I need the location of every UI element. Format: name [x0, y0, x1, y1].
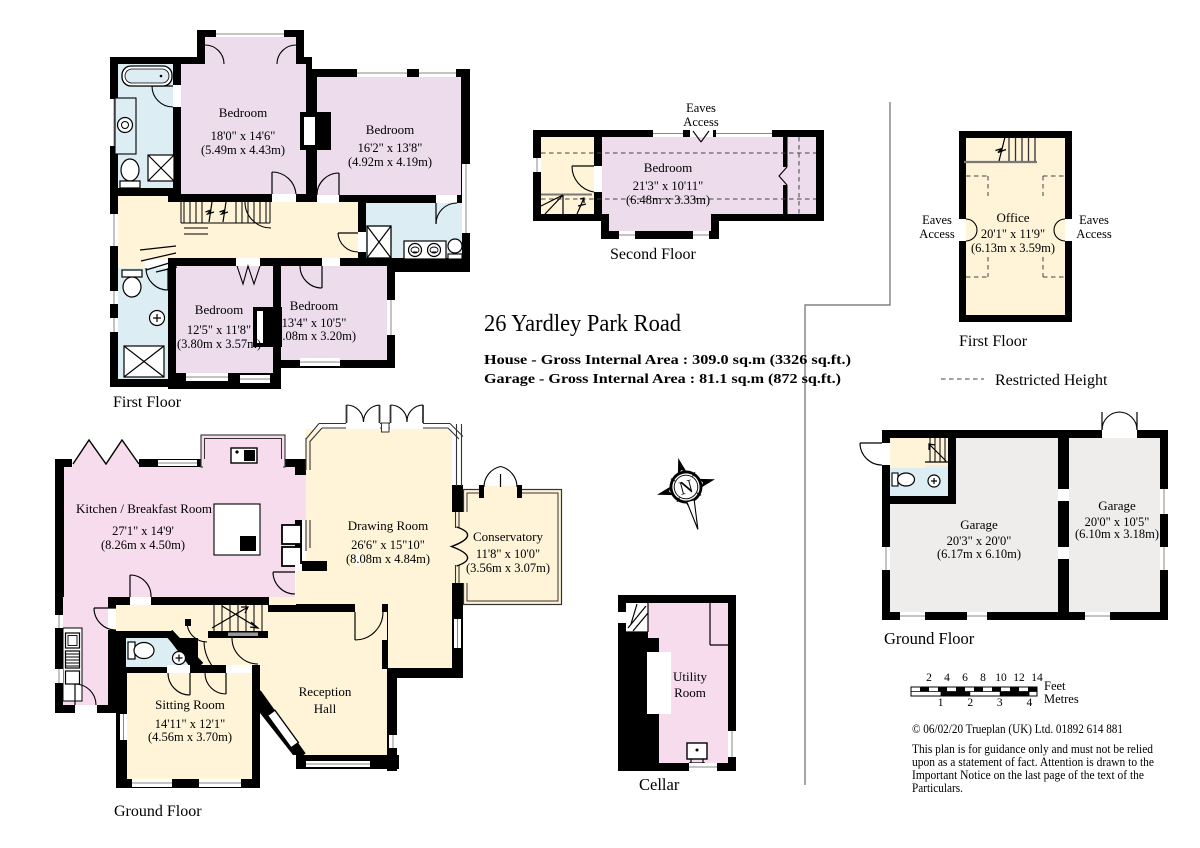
svg-text:Access: Access	[919, 227, 955, 241]
svg-text:14: 14	[1031, 672, 1043, 684]
svg-text:Eaves: Eaves	[922, 213, 952, 227]
svg-text:First Floor: First Floor	[113, 394, 182, 411]
svg-text:(5.49m x 4.43m): (5.49m x 4.43m)	[201, 143, 285, 157]
svg-text:2: 2	[926, 672, 932, 684]
svg-text:Bedroom: Bedroom	[290, 298, 338, 313]
svg-text:12: 12	[1013, 672, 1025, 684]
svg-text:(8.26m x 4.50m): (8.26m x 4.50m)	[101, 538, 185, 552]
svg-text:Conservatory: Conservatory	[473, 529, 544, 544]
svg-text:21'3" x 10'11": 21'3" x 10'11"	[633, 179, 704, 193]
svg-text:Cellar: Cellar	[639, 775, 680, 794]
svg-text:26'6" x 15"10": 26'6" x 15"10"	[351, 538, 425, 552]
svg-text:Hall: Hall	[314, 701, 337, 716]
svg-text:Utility: Utility	[673, 669, 707, 684]
svg-text:Bedroom: Bedroom	[195, 302, 243, 317]
svg-text:Restricted Height: Restricted Height	[995, 372, 1108, 389]
svg-text:House - Gross Internal Area :: House - Gross Internal Area : 309.0 sq.m…	[484, 353, 851, 368]
svg-text:13'4" x 10'5": 13'4" x 10'5"	[282, 316, 347, 330]
svg-text:18'0" x 14'6": 18'0" x 14'6"	[211, 129, 276, 143]
svg-text:20'3" x 20'0": 20'3" x 20'0"	[947, 534, 1012, 548]
svg-text:Particulars.: Particulars.	[912, 780, 963, 795]
svg-text:(6.48m x 3.33m): (6.48m x 3.33m)	[626, 193, 710, 207]
svg-text:10: 10	[995, 672, 1007, 684]
svg-text:(4.08m x 3.20m): (4.08m x 3.20m)	[272, 329, 356, 343]
svg-text:Garage - Gross Internal Area: Garage - Gross Internal Area : 81.1 sq.m…	[484, 372, 841, 387]
svg-text:(8.08m x 4.84m): (8.08m x 4.84m)	[346, 552, 430, 566]
svg-text:27'1" x 14'9': 27'1" x 14'9'	[112, 524, 174, 538]
svg-text:Eaves: Eaves	[686, 101, 716, 115]
svg-text:1: 1	[938, 697, 944, 709]
svg-text:First Floor: First Floor	[959, 333, 1028, 350]
svg-text:16'2" x 13'8": 16'2" x 13'8"	[358, 141, 423, 155]
svg-text:Ground Floor: Ground Floor	[114, 803, 202, 820]
svg-text:14'11" x 12'1": 14'11" x 12'1"	[155, 717, 226, 731]
svg-text:Eaves: Eaves	[1079, 213, 1109, 227]
svg-text:26 Yardley Park Road: 26 Yardley Park Road	[484, 310, 681, 337]
svg-text:Kitchen / Breakfast Room: Kitchen / Breakfast Room	[76, 501, 212, 516]
svg-text:4: 4	[1027, 697, 1033, 709]
svg-text:4: 4	[944, 672, 950, 684]
svg-text:(4.92m x 4.19m): (4.92m x 4.19m)	[348, 155, 432, 169]
svg-text:(3.80m x 3.57m): (3.80m x 3.57m)	[177, 337, 261, 351]
svg-text:3: 3	[997, 697, 1003, 709]
svg-text:2: 2	[967, 697, 973, 709]
svg-text:6: 6	[962, 672, 968, 684]
svg-text:(4.56m x 3.70m): (4.56m x 3.70m)	[148, 730, 232, 744]
svg-text:Ground Floor: Ground Floor	[884, 629, 975, 648]
svg-text:Office: Office	[997, 210, 1030, 225]
svg-text:Bedroom: Bedroom	[644, 160, 692, 175]
svg-text:Bedroom: Bedroom	[219, 105, 267, 120]
svg-text:(3.56m x 3.07m): (3.56m x 3.07m)	[466, 561, 550, 575]
svg-text:(6.13m x 3.59m): (6.13m x 3.59m)	[971, 241, 1055, 255]
svg-text:12'5" x 11'8": 12'5" x 11'8"	[187, 323, 251, 337]
svg-text:© 06/02/20 Trueplan (UK) Lt: © 06/02/20 Trueplan (UK) Ltd. 01892 614 …	[912, 721, 1123, 736]
svg-text:Drawing Room: Drawing Room	[348, 518, 429, 533]
svg-text:Garage: Garage	[960, 517, 998, 532]
svg-text:Access: Access	[1076, 227, 1112, 241]
svg-text:8: 8	[980, 672, 986, 684]
svg-text:Reception: Reception	[299, 684, 352, 699]
svg-text:Metres: Metres	[1044, 692, 1079, 706]
svg-text:(6.17m x 6.10m): (6.17m x 6.10m)	[937, 547, 1021, 561]
svg-text:Garage: Garage	[1098, 498, 1136, 513]
svg-text:Room: Room	[674, 685, 706, 700]
svg-text:Second Floor: Second Floor	[610, 246, 696, 263]
svg-text:Feet: Feet	[1044, 679, 1066, 693]
svg-text:11'8" x 10'0": 11'8" x 10'0"	[476, 547, 540, 561]
svg-text:20'1" x 11'9": 20'1" x 11'9"	[981, 227, 1045, 241]
svg-text:(6.10m x 3.18m): (6.10m x 3.18m)	[1075, 527, 1159, 541]
svg-text:Access: Access	[683, 115, 719, 129]
svg-text:Bedroom: Bedroom	[366, 122, 414, 137]
svg-text:Sitting Room: Sitting Room	[155, 697, 225, 712]
